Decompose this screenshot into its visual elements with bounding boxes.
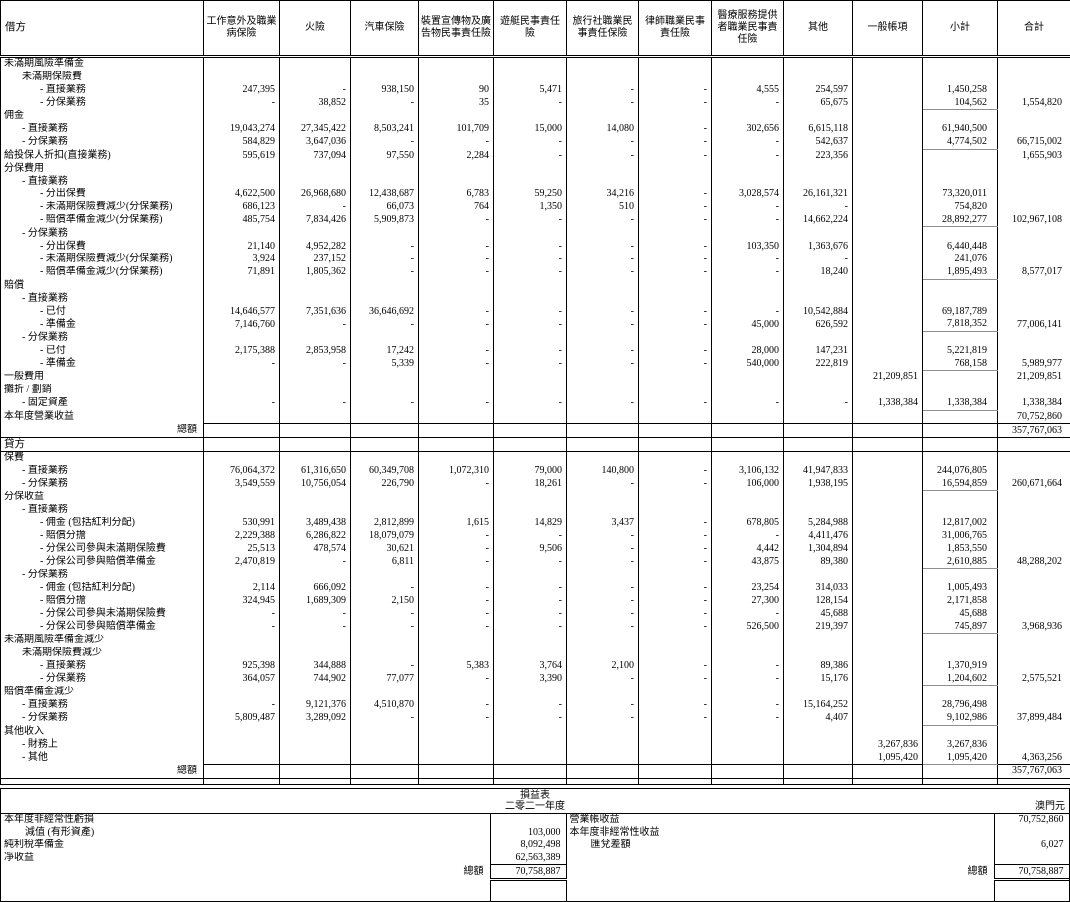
cell-value [998, 201, 1070, 214]
cell-value: - [419, 136, 494, 149]
cell-value [853, 595, 923, 608]
cell-value [639, 751, 712, 764]
cell-value: - [567, 582, 639, 595]
cell-value [280, 647, 351, 660]
cell-value: 737,094 [280, 149, 351, 162]
cell-value [567, 424, 639, 438]
cell-value [998, 279, 1070, 292]
cell-value: - [567, 672, 639, 685]
cell-value: 66,073 [351, 201, 419, 214]
row-label: 純利稅準備金 [1, 839, 490, 852]
cell-value [712, 424, 784, 438]
cell-value: 1,554,820 [998, 96, 1070, 109]
cell-value [280, 227, 351, 240]
cell-value [784, 175, 853, 188]
cell-value [419, 725, 494, 738]
cell-value: - [639, 465, 712, 478]
cell-value [923, 778, 998, 784]
cell-value [712, 384, 784, 397]
cell-value: - [419, 607, 494, 620]
cell-value [280, 292, 351, 305]
cell-value [419, 504, 494, 517]
cell-value: - [494, 555, 567, 568]
cell-value [998, 465, 1070, 478]
cell-value [567, 686, 639, 699]
cell-value [639, 778, 712, 784]
cell-value [351, 410, 419, 424]
row-label: 凈收益 [1, 852, 490, 865]
cell-value: 1,615 [419, 517, 494, 530]
cell-value [567, 765, 639, 779]
cell-value [923, 162, 998, 175]
cell-value [280, 331, 351, 344]
cell-value [639, 279, 712, 292]
cell-value: 1,450,258 [923, 84, 998, 97]
cell-value: 247,395 [204, 84, 280, 97]
cell-value [494, 569, 567, 582]
cell-value [998, 542, 1070, 555]
cell-value [567, 451, 639, 464]
cell-value [280, 57, 351, 71]
cell-value [419, 279, 494, 292]
cell-value [204, 424, 280, 438]
cell-value [853, 110, 923, 123]
header-row: 借方 工作意外及職業病保險 火險 汽車保險 裝置宣傳物及廣告物民事責任險 遊艇民… [1, 1, 1070, 57]
row-label: 攤折 / 劃銷 [1, 384, 204, 397]
cell-value [567, 647, 639, 660]
row-label: - 分保公司參與未滿期保險費 [1, 542, 204, 555]
cell-value [567, 175, 639, 188]
filler-cell [490, 879, 566, 901]
cell-value: 48,288,202 [998, 555, 1070, 568]
cell-value: - [419, 305, 494, 318]
row-label: 保費 [1, 451, 204, 464]
cell-value: - [419, 595, 494, 608]
cell-value [998, 110, 1070, 123]
table-row: - 未滿期保險費減少(分保業務)686,123-66,0737641,35051… [1, 201, 1070, 214]
cell-value: - [494, 214, 567, 227]
cell-value [712, 491, 784, 504]
cell-value [853, 778, 923, 784]
cell-value: - [639, 214, 712, 227]
cell-value [280, 110, 351, 123]
cell-value [351, 57, 419, 71]
cell-value: - [639, 530, 712, 543]
cell-value [567, 504, 639, 517]
cell-value: 526,500 [712, 620, 784, 633]
cell-value [494, 279, 567, 292]
cell-value: - [567, 555, 639, 568]
cell-value: - [419, 582, 494, 595]
cell-value [712, 686, 784, 699]
cell-value [923, 292, 998, 305]
cell-value [494, 451, 567, 464]
cell-value [853, 607, 923, 620]
cell-value: 745,897 [923, 620, 998, 633]
cell-value [784, 227, 853, 240]
cell-value: - [639, 84, 712, 97]
cell-value [639, 725, 712, 738]
table-row: 凈收益 62,563,389 [1, 852, 1069, 865]
cell-value [639, 227, 712, 240]
column-header: 醫療服務提供者職業民事責任險 [712, 1, 784, 57]
cell-value: - [419, 214, 494, 227]
cell-value [923, 634, 998, 647]
cell-value: - [351, 136, 419, 149]
cell-value [998, 634, 1070, 647]
cell-value [204, 504, 280, 517]
cell-value [204, 292, 280, 305]
cell-value [853, 305, 923, 318]
row-label [566, 852, 994, 865]
cell-value: - [494, 318, 567, 331]
cell-value [853, 451, 923, 464]
cell-value [998, 725, 1070, 738]
cell-value: - [567, 305, 639, 318]
cell-value: - [280, 555, 351, 568]
cell-value: 2,284 [419, 149, 494, 162]
cell-value [280, 71, 351, 84]
cell-value [853, 136, 923, 149]
cell-value: 7,818,352 [923, 318, 998, 331]
column-header: 合計 [998, 1, 1070, 57]
table-row: 未滿期保險費 [1, 71, 1070, 84]
row-label: 本年度非經常性虧損 [1, 814, 490, 827]
cell-value: 2,100 [567, 660, 639, 673]
cell-value: - [639, 357, 712, 370]
cell-value: 595,619 [204, 149, 280, 162]
cell-value: - [567, 149, 639, 162]
filler-cell [1, 879, 490, 901]
cell-value [712, 162, 784, 175]
cell-value: 21,140 [204, 240, 280, 253]
cell-value: 23,254 [712, 582, 784, 595]
cell-value: - [712, 201, 784, 214]
table-row: - 已付2,175,3882,853,95817,242----28,00014… [1, 345, 1070, 358]
row-label: - 財務上 [1, 738, 204, 751]
cell-value [784, 738, 853, 751]
cell-value [351, 686, 419, 699]
cell-value: - [567, 266, 639, 279]
cell-value: - [567, 84, 639, 97]
cell-value [204, 491, 280, 504]
cell-value: - [567, 699, 639, 712]
cell-value [419, 634, 494, 647]
cell-value: - [712, 253, 784, 266]
cell-value [853, 438, 923, 452]
cell-value [351, 279, 419, 292]
filler-row [1, 778, 1070, 784]
row-label: 匯兌差額 [566, 839, 994, 852]
cell-value: 2,229,388 [204, 530, 280, 543]
cell-value [998, 188, 1070, 201]
cell-value [784, 424, 853, 438]
cell-value [998, 292, 1070, 305]
cell-value: - [567, 136, 639, 149]
cell-value [784, 71, 853, 84]
cell-value [853, 201, 923, 214]
cell-value [494, 725, 567, 738]
cell-value [280, 491, 351, 504]
cell-value [351, 331, 419, 344]
cell-value: - [639, 397, 712, 410]
cell-value [784, 384, 853, 397]
cell-value [419, 162, 494, 175]
cell-value [853, 478, 923, 491]
row-label: 賠償 [1, 279, 204, 292]
table-row: - 分保業務 [1, 331, 1070, 344]
cell-value [853, 357, 923, 370]
cell-value: - [639, 595, 712, 608]
cell-value: 6,811 [351, 555, 419, 568]
cell-value [998, 778, 1070, 784]
row-label: - 準備金 [1, 318, 204, 331]
row-label: - 準備金 [1, 357, 204, 370]
cell-value [419, 751, 494, 764]
cell-value [494, 71, 567, 84]
cell-value: - [567, 478, 639, 491]
row-label: - 直接業務 [1, 699, 204, 712]
cell-value: - [494, 397, 567, 410]
cell-value: 15,176 [784, 672, 853, 685]
cell-value: 3,968,936 [998, 620, 1070, 633]
cell-value [494, 634, 567, 647]
cell-value [639, 57, 712, 71]
cell-value: 9,121,376 [280, 699, 351, 712]
cell-value: - [784, 201, 853, 214]
cell-value [419, 110, 494, 123]
cell-value: 3,267,836 [923, 738, 998, 751]
cell-value [923, 110, 998, 123]
cell-value: 6,286,822 [280, 530, 351, 543]
cell-value: - [639, 266, 712, 279]
total-value: 70,758,887 [994, 865, 1069, 880]
table-row: - 佣金 (包括紅利分配)2,114666,092-----23,254314,… [1, 582, 1070, 595]
cell-value [351, 438, 419, 452]
cell-value [494, 751, 567, 764]
cell-value: 43,875 [712, 555, 784, 568]
cell-value [419, 569, 494, 582]
cell-value: - [639, 542, 712, 555]
cell-value: 1,805,362 [280, 266, 351, 279]
cell-value: 768,158 [923, 357, 998, 370]
cell-value [280, 765, 351, 779]
cell-value [494, 738, 567, 751]
cell-value [280, 424, 351, 438]
cell-value [998, 438, 1070, 452]
cell-value [712, 647, 784, 660]
row-label: - 分保業務 [1, 227, 204, 240]
cell-value: 344,888 [280, 660, 351, 673]
cell-value: 6,615,118 [784, 123, 853, 136]
table-row: - 分保業務5,809,4873,289,092------4,4079,102… [1, 712, 1070, 725]
cell-value [998, 240, 1070, 253]
row-label: - 直接業務 [1, 175, 204, 188]
cell-value [784, 331, 853, 344]
cell-value [998, 253, 1070, 266]
cell-value [712, 292, 784, 305]
cell-value: - [351, 240, 419, 253]
cell-value: 1,095,420 [853, 751, 923, 764]
cell-value [351, 634, 419, 647]
cell-value: 9,506 [494, 542, 567, 555]
cell-value [923, 57, 998, 71]
table-row: - 直接業務247,395-938,150905,471--4,555254,5… [1, 84, 1070, 97]
cell-value [853, 647, 923, 660]
cell-value [853, 582, 923, 595]
cell-value: 5,221,819 [923, 345, 998, 358]
cell-value: 5,284,988 [784, 517, 853, 530]
column-header: 其他 [784, 1, 853, 57]
table-row: - 分保公司參與賠償準備金-------526,500219,397745,89… [1, 620, 1070, 633]
cell-value [712, 451, 784, 464]
cell-value [204, 110, 280, 123]
cell-value: - [419, 530, 494, 543]
cell-value: 1,370,919 [923, 660, 998, 673]
cell-value [419, 175, 494, 188]
cell-value [419, 491, 494, 504]
cell-value [853, 660, 923, 673]
cell-value [280, 738, 351, 751]
cell-value [204, 371, 280, 384]
cell-value [351, 504, 419, 517]
cell-value: - [639, 672, 712, 685]
cell-value: 18,261 [494, 478, 567, 491]
credit-section-row: 貸方 [1, 438, 1070, 452]
cell-value: - [280, 607, 351, 620]
cell-value [923, 149, 998, 162]
cell-value [853, 266, 923, 279]
cell-value: - [494, 149, 567, 162]
cell-value: - [567, 607, 639, 620]
cell-value [567, 331, 639, 344]
cell-value [712, 751, 784, 764]
cell-value [784, 778, 853, 784]
cell-value: 364,057 [204, 672, 280, 685]
cell-value [351, 162, 419, 175]
cell-value: 106,000 [712, 478, 784, 491]
cell-value [998, 305, 1070, 318]
cell-value: - [639, 305, 712, 318]
cell-value: - [351, 712, 419, 725]
cell-value: - [494, 345, 567, 358]
cell-value [351, 292, 419, 305]
cell-value: - [639, 517, 712, 530]
cell-value [419, 778, 494, 784]
cell-value: 15,000 [494, 123, 567, 136]
cell-value: 222,819 [784, 357, 853, 370]
cell-value: 540,000 [712, 357, 784, 370]
cell-value: 59,250 [494, 188, 567, 201]
cell-value: - [639, 555, 712, 568]
cell-value [280, 371, 351, 384]
cell-value: 3,390 [494, 672, 567, 685]
row-label: - 賠償分擔 [1, 595, 204, 608]
cell-value: 16,594,859 [923, 478, 998, 491]
cell-value: 1,338,384 [853, 397, 923, 410]
cell-value: 6,027 [994, 839, 1069, 852]
cell-value [712, 175, 784, 188]
cell-value [853, 620, 923, 633]
cell-value [853, 240, 923, 253]
cell-value [853, 712, 923, 725]
cell-value: - [351, 620, 419, 633]
cell-value [712, 57, 784, 71]
cell-value [204, 57, 280, 71]
cell-value [853, 634, 923, 647]
cell-value [204, 634, 280, 647]
cell-value [280, 410, 351, 424]
row-label: - 已付 [1, 345, 204, 358]
cell-value: - [351, 96, 419, 109]
cell-value: 478,574 [280, 542, 351, 555]
cell-value [567, 279, 639, 292]
cell-value [853, 253, 923, 266]
cell-value [567, 778, 639, 784]
cell-value: 938,150 [351, 84, 419, 97]
cell-value [998, 384, 1070, 397]
cell-value [494, 57, 567, 71]
cell-value [712, 634, 784, 647]
cell-value [567, 738, 639, 751]
cell-value: 41,947,833 [784, 465, 853, 478]
cell-value [494, 424, 567, 438]
cell-value [351, 227, 419, 240]
cell-value [494, 778, 567, 784]
cell-value: 4,774,502 [923, 136, 998, 149]
cell-value [639, 647, 712, 660]
cell-value: - [494, 712, 567, 725]
row-label: - 直接業務 [1, 465, 204, 478]
table-row: 未滿期風險準備金 [1, 57, 1070, 71]
cell-value: 102,967,108 [998, 214, 1070, 227]
row-label: - 分保公司參與賠償準備金 [1, 620, 204, 633]
cell-value: - [351, 266, 419, 279]
income-statement-header: 損益表 二零二一年度 澳門元 [1, 789, 1069, 814]
cell-value [784, 410, 853, 424]
cell-value: 4,442 [712, 542, 784, 555]
cell-value [639, 424, 712, 438]
cell-value: 4,510,870 [351, 699, 419, 712]
cell-value: - [567, 214, 639, 227]
cell-value [419, 227, 494, 240]
cell-value: 2,470,819 [204, 555, 280, 568]
table-row: 其他收入 [1, 725, 1070, 738]
cell-value: - [639, 607, 712, 620]
cell-value: - [712, 530, 784, 543]
cell-value: - [351, 582, 419, 595]
total-label [1, 778, 204, 784]
cell-value: - [639, 699, 712, 712]
cell-value: - [639, 123, 712, 136]
cell-value: 223,356 [784, 149, 853, 162]
cell-value: 244,076,805 [923, 465, 998, 478]
cell-value: - [419, 620, 494, 633]
cell-value [280, 778, 351, 784]
cell-value: 3,924 [204, 253, 280, 266]
cell-value: - [280, 84, 351, 97]
cell-value: 103,000 [490, 826, 566, 839]
cell-value [419, 57, 494, 71]
cell-value: - [567, 542, 639, 555]
cell-value: 34,216 [567, 188, 639, 201]
cell-value: - [784, 253, 853, 266]
row-label: 分保費用 [1, 162, 204, 175]
cell-value: 65,675 [784, 96, 853, 109]
cell-value: 18,240 [784, 266, 853, 279]
cell-value: 542,637 [784, 136, 853, 149]
row-label: 本年度營業收益 [1, 410, 204, 424]
